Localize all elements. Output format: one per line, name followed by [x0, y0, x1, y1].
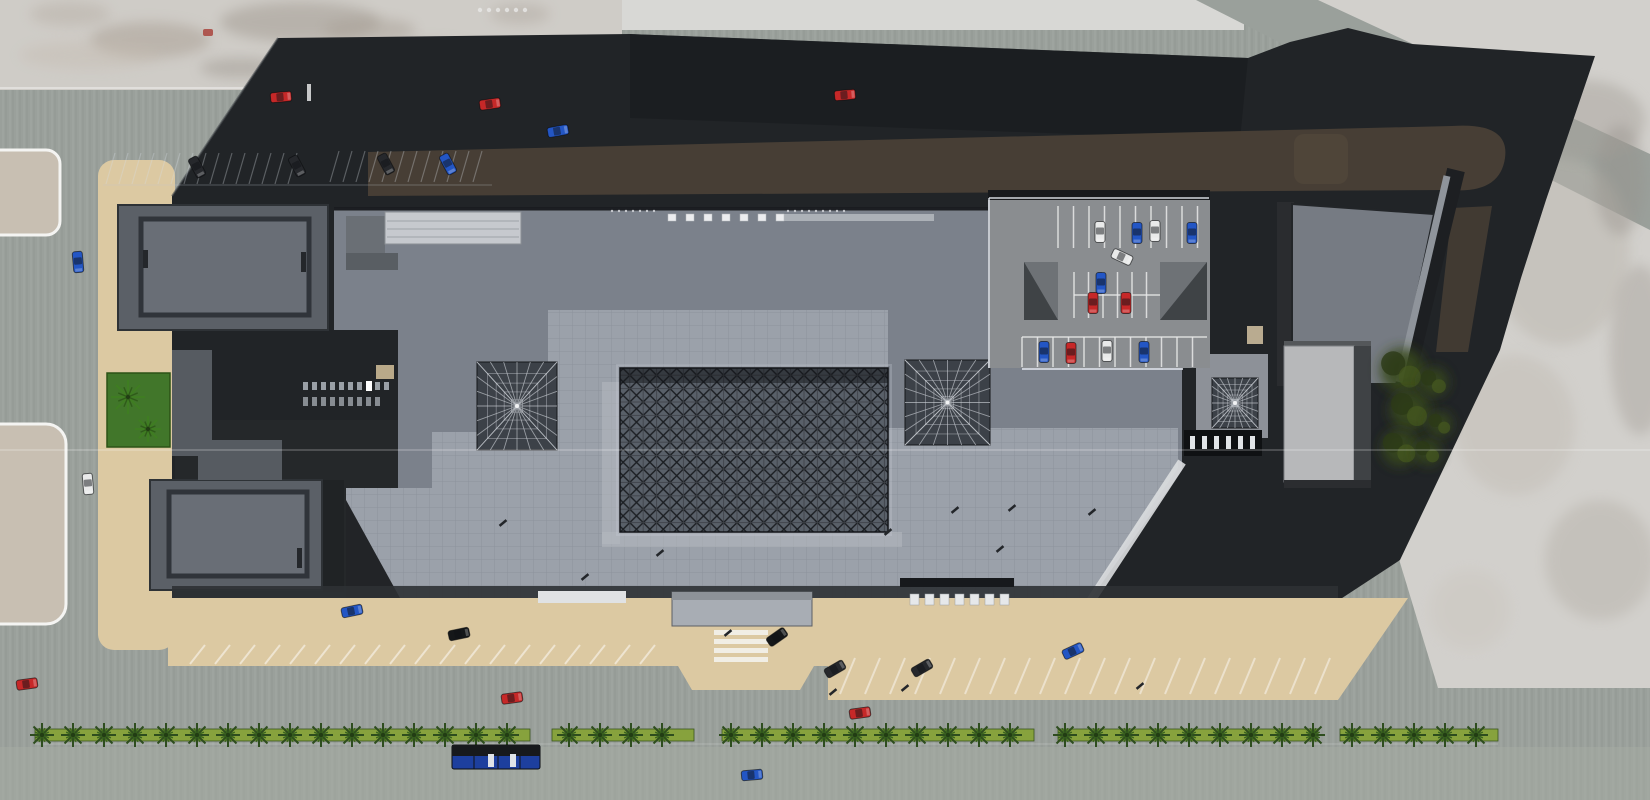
canopy-cap — [346, 216, 385, 253]
sidewalk-band — [0, 747, 1650, 800]
car-blue — [1139, 342, 1149, 363]
car-red — [1066, 343, 1076, 364]
court-door-row-2 — [303, 397, 380, 406]
car-blue — [1187, 223, 1197, 244]
block-a-tick-2 — [301, 252, 306, 272]
block-a-tick-1 — [143, 250, 148, 268]
court-door-bright — [366, 381, 372, 391]
plot-bottom-left — [0, 424, 66, 624]
tan-mini-block — [1247, 326, 1263, 344]
car-white — [1095, 222, 1105, 243]
city-bus — [452, 745, 540, 769]
court-tan-notch — [376, 365, 394, 379]
east-entry-boxes — [910, 594, 1009, 605]
car-blue — [741, 769, 763, 781]
entrance-white-strip — [538, 591, 626, 603]
skylight-pyramid-west — [477, 362, 557, 450]
wing-horizontal — [198, 440, 282, 480]
car-white — [1150, 221, 1160, 242]
skylight-pyramid-small — [1212, 378, 1258, 428]
car-blue — [1096, 273, 1106, 294]
plot-top-left — [0, 150, 60, 235]
distant-car-red — [203, 29, 213, 36]
car-red — [834, 89, 856, 101]
entrance-canopy-band — [672, 592, 812, 600]
skylight-pyramid-east — [905, 360, 990, 445]
roof-edge-strip — [782, 214, 934, 221]
car-white — [1102, 341, 1112, 362]
terrain-sand-top-strip — [622, 0, 1244, 30]
site-aerial-render — [0, 0, 1650, 800]
tower-bottom-edge — [1284, 480, 1371, 488]
east-entry-dark-row — [900, 578, 1014, 587]
car-white — [82, 473, 94, 495]
block-a-inner — [141, 219, 309, 315]
site-plan-svg — [0, 0, 1650, 800]
car-red — [270, 91, 292, 103]
block-b-shadow — [322, 480, 344, 592]
car-blue — [1039, 342, 1049, 363]
car-red — [1121, 293, 1131, 314]
car-red — [1088, 293, 1098, 314]
car-blue — [72, 251, 84, 273]
canopy-cap-step — [346, 253, 398, 270]
roof-dots-right — [787, 210, 845, 212]
roof-post — [307, 84, 311, 101]
car-blue — [1132, 223, 1142, 244]
roof-canopy — [385, 212, 521, 244]
tower-side-band — [1354, 346, 1371, 482]
planter-box — [107, 373, 170, 447]
block-b-tick — [297, 548, 302, 568]
block-b-inner — [169, 492, 307, 576]
tower-light — [1284, 346, 1354, 482]
